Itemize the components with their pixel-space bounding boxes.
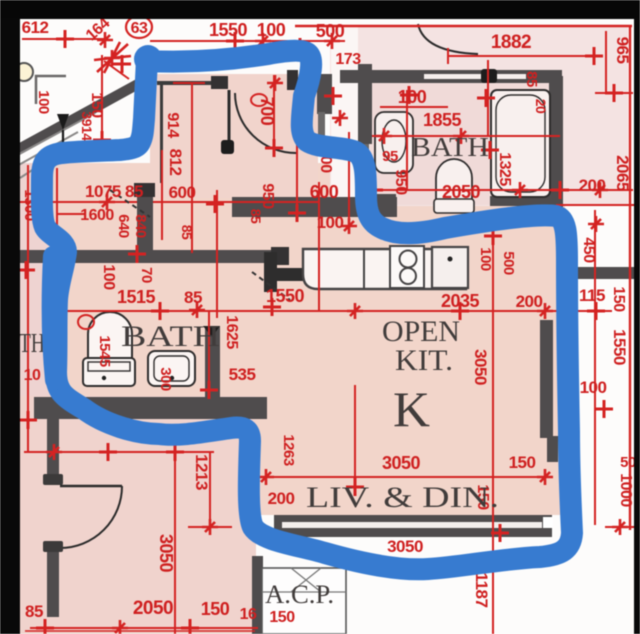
svg-text:3050: 3050 — [382, 453, 421, 473]
svg-text:300: 300 — [157, 367, 174, 391]
svg-text:BATH: BATH — [121, 320, 220, 353]
svg-text:173: 173 — [335, 51, 361, 68]
svg-text:150: 150 — [88, 92, 105, 118]
svg-text:20: 20 — [533, 99, 549, 114]
svg-text:85: 85 — [25, 602, 43, 621]
svg-text:600: 600 — [169, 183, 196, 202]
svg-text:1515: 1515 — [117, 287, 156, 307]
svg-text:85: 85 — [179, 225, 195, 240]
svg-text:200: 200 — [268, 489, 295, 508]
svg-text:1545: 1545 — [96, 335, 113, 367]
svg-text:10: 10 — [24, 367, 41, 384]
svg-text:1263: 1263 — [280, 434, 297, 466]
svg-text:50: 50 — [620, 454, 636, 471]
svg-text:840: 840 — [132, 214, 149, 238]
svg-text:535: 535 — [229, 365, 256, 384]
svg-text:500: 500 — [500, 251, 517, 275]
svg-text:200: 200 — [579, 176, 606, 195]
svg-text:500: 500 — [316, 21, 345, 41]
svg-text:63: 63 — [131, 20, 148, 37]
svg-text:16: 16 — [240, 606, 257, 623]
svg-text:3050: 3050 — [156, 534, 176, 573]
svg-text:85: 85 — [184, 288, 202, 307]
svg-text:100: 100 — [317, 213, 344, 232]
svg-text:100: 100 — [477, 247, 494, 271]
svg-text:812: 812 — [166, 149, 185, 176]
svg-text:3050: 3050 — [471, 349, 490, 385]
svg-text:950: 950 — [259, 183, 276, 209]
svg-text:1625: 1625 — [223, 315, 240, 349]
svg-text:150: 150 — [610, 286, 627, 312]
svg-text:612: 612 — [22, 18, 49, 37]
svg-text:1855: 1855 — [423, 110, 462, 130]
svg-text:100: 100 — [257, 20, 286, 40]
svg-text:BATH: BATH — [411, 132, 489, 162]
svg-text:1600: 1600 — [80, 207, 114, 224]
svg-text:2065: 2065 — [613, 155, 632, 191]
svg-text:1882: 1882 — [491, 32, 531, 53]
svg-text:150: 150 — [509, 453, 536, 472]
svg-text:1000: 1000 — [617, 473, 634, 507]
svg-text:1550: 1550 — [610, 329, 629, 365]
svg-text:LIV. & DIN.: LIV. & DIN. — [306, 481, 499, 514]
svg-text:914: 914 — [164, 112, 181, 138]
svg-text:700: 700 — [257, 97, 277, 126]
svg-text:85: 85 — [248, 209, 264, 224]
svg-text:115: 115 — [579, 286, 605, 305]
svg-text:450: 450 — [580, 237, 597, 263]
svg-text:85: 85 — [523, 71, 540, 87]
svg-text:2035: 2035 — [441, 291, 480, 311]
svg-text:100: 100 — [35, 90, 52, 114]
svg-text:2050: 2050 — [133, 598, 173, 619]
svg-text:100: 100 — [580, 378, 607, 397]
svg-text:100: 100 — [398, 87, 427, 107]
svg-text:965: 965 — [613, 37, 632, 64]
svg-text:1325: 1325 — [496, 152, 513, 186]
svg-text:1187: 1187 — [472, 573, 491, 608]
svg-text:2050: 2050 — [442, 182, 481, 202]
svg-text:600: 600 — [310, 182, 339, 202]
svg-text:3050: 3050 — [387, 537, 423, 556]
svg-text:150: 150 — [269, 609, 295, 626]
svg-text:95: 95 — [382, 148, 398, 165]
svg-text:950: 950 — [392, 169, 409, 195]
svg-text:150: 150 — [201, 599, 230, 619]
svg-text:1075 85: 1075 85 — [85, 182, 143, 201]
svg-text:TH: TH — [19, 328, 45, 358]
svg-text:70: 70 — [138, 267, 155, 283]
svg-text:200: 200 — [516, 292, 543, 311]
svg-text:1550: 1550 — [266, 286, 305, 306]
svg-text:A.C.P.: A.C.P. — [265, 580, 334, 609]
svg-text:1213: 1213 — [192, 454, 211, 490]
svg-text:K: K — [393, 381, 430, 437]
svg-text:KIT.: KIT. — [395, 344, 453, 377]
svg-text:100: 100 — [100, 264, 117, 290]
svg-text:1550: 1550 — [209, 20, 248, 40]
svg-text:640: 640 — [115, 214, 132, 238]
